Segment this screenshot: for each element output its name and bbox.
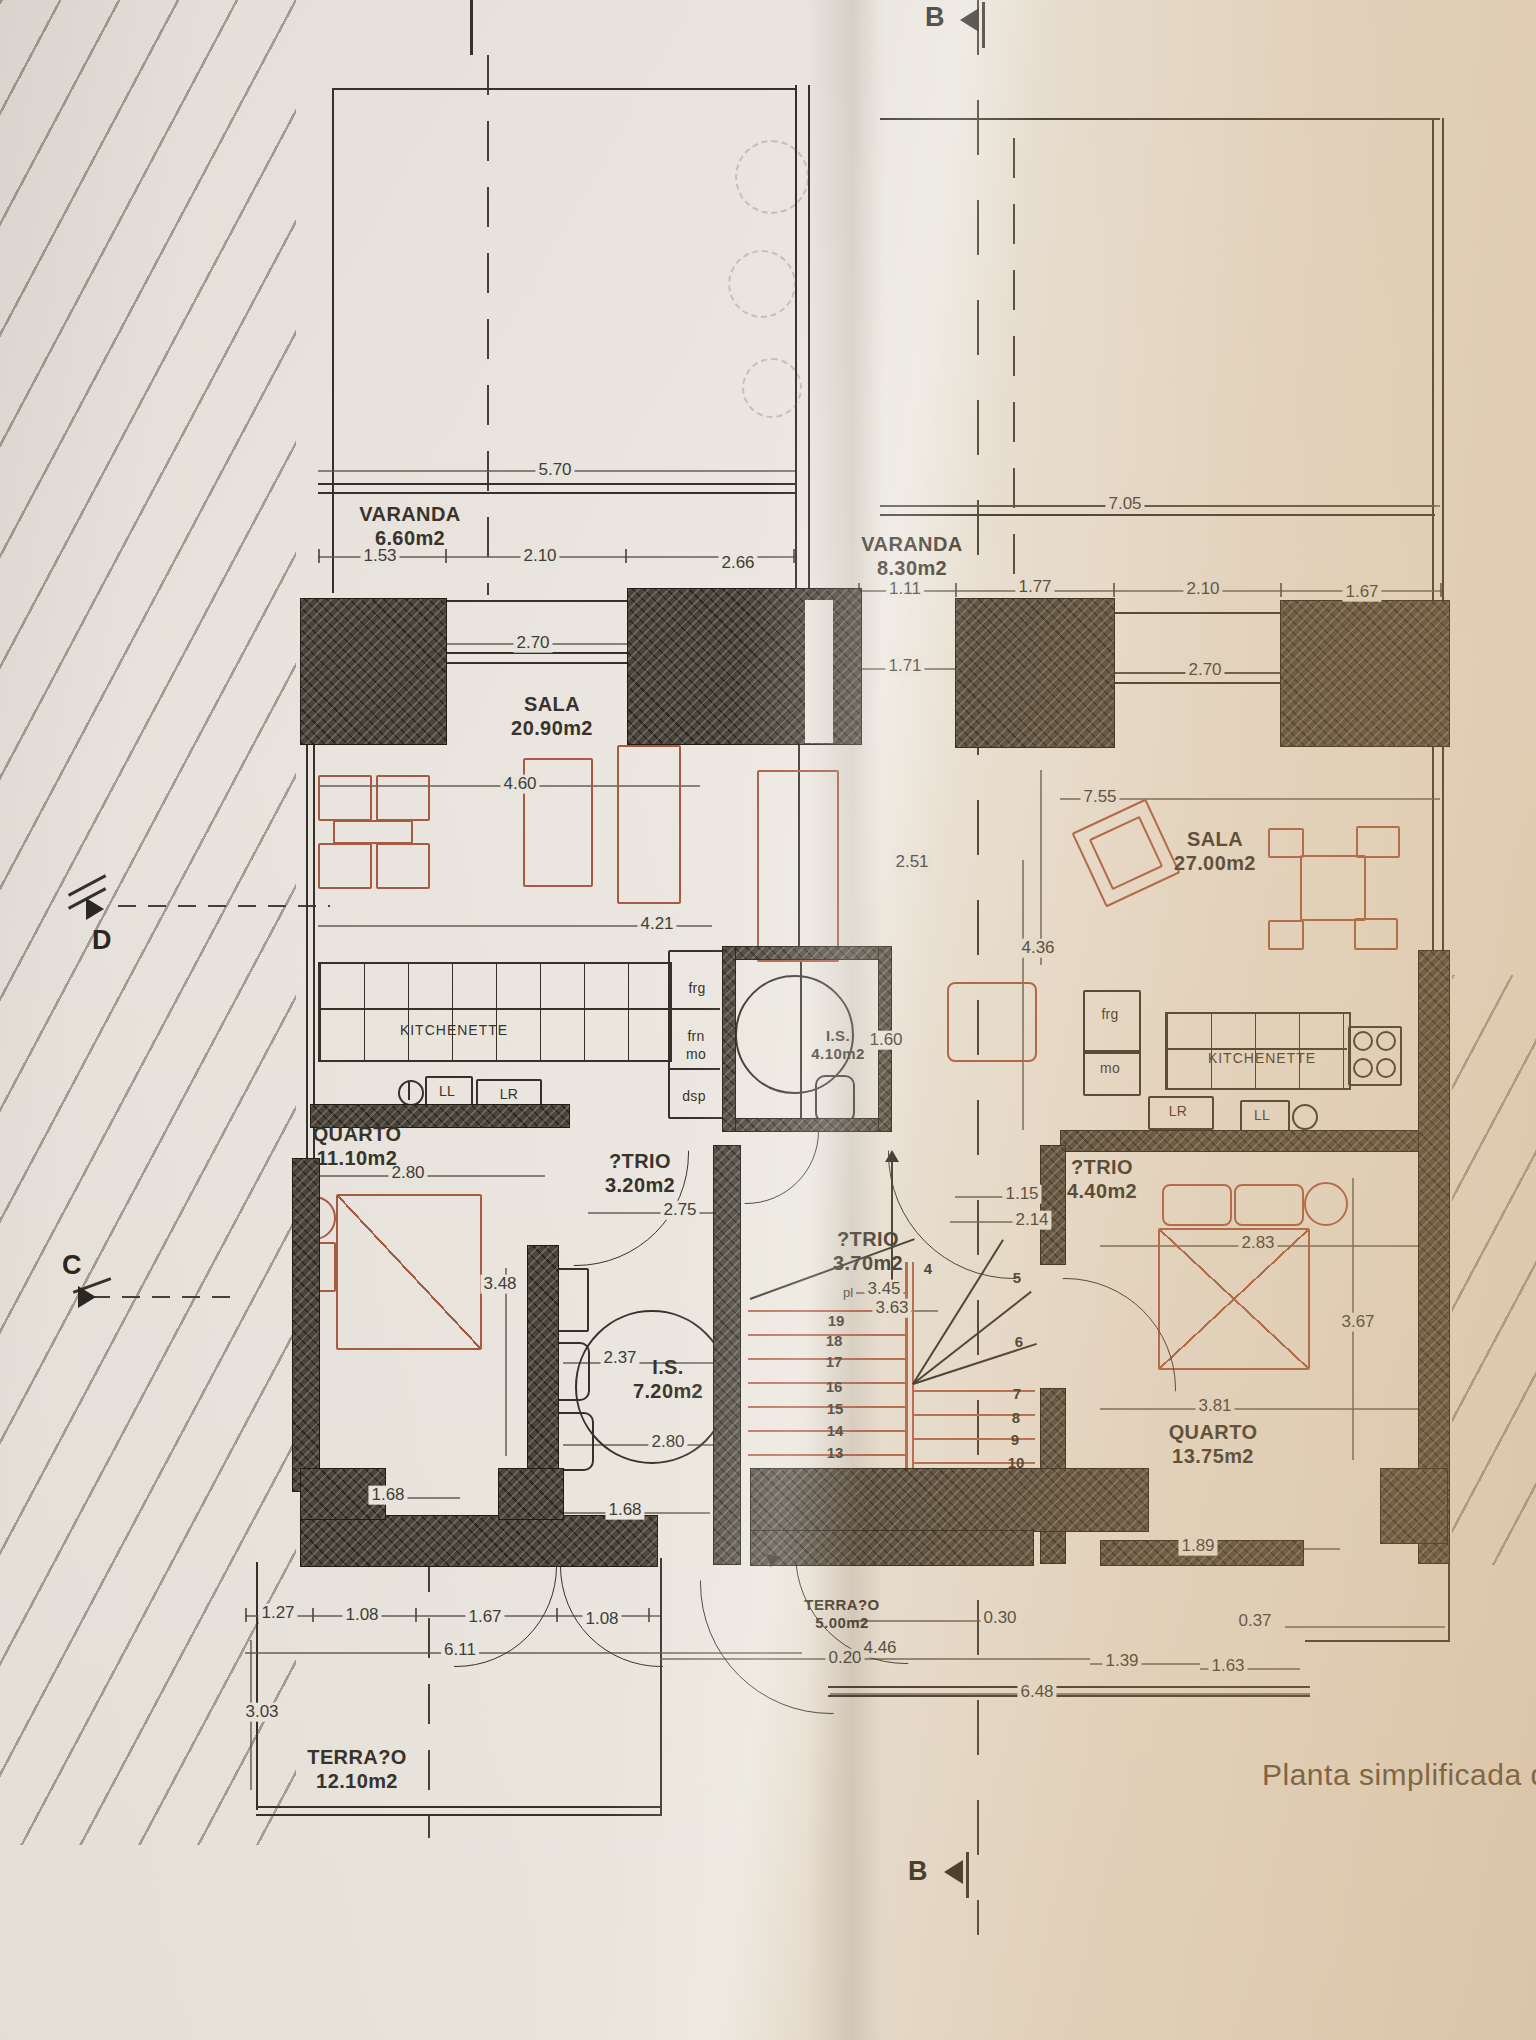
hob-burner	[1353, 1058, 1373, 1078]
dim-tick	[445, 549, 447, 563]
dim-tick	[556, 1608, 558, 1622]
stair-number: 7	[1013, 1385, 1021, 1402]
room-area: 4.10m2	[811, 1045, 864, 1063]
room-label-quarto-right: QUARTO13.75m2	[1169, 1421, 1258, 1468]
stair-number: 13	[827, 1444, 844, 1461]
room-name: ?TRIO	[833, 1228, 903, 1252]
dim-label: 6.48	[1017, 1683, 1056, 1702]
dim-label: pl	[840, 1286, 856, 1300]
wall	[300, 598, 447, 745]
room-area: 6.60m2	[359, 527, 460, 551]
toilet	[815, 1075, 855, 1123]
ghost-circle	[728, 250, 796, 318]
window-sill	[445, 600, 627, 602]
stair-arrow-head	[885, 1150, 899, 1162]
dim-label: 5.70	[535, 461, 574, 480]
room-name: VARANDA	[861, 533, 962, 557]
section-marker-d-icon	[86, 898, 104, 920]
sink-symbol	[398, 1080, 424, 1106]
dim-label: 1.15	[1002, 1185, 1041, 1204]
bed	[1158, 1228, 1310, 1370]
dim-label: 1.68	[368, 1486, 407, 1505]
dim-label: 7.05	[1105, 495, 1144, 514]
dim-line	[830, 1693, 1310, 1695]
dim-tick	[625, 549, 627, 563]
dim-tick	[955, 583, 957, 597]
stair-number: 14	[827, 1422, 844, 1439]
dim-tick	[1280, 583, 1282, 597]
dim-label: 2.70	[513, 634, 552, 653]
sofa	[947, 982, 1037, 1062]
dim-label: 1.08	[582, 1610, 621, 1629]
wall	[722, 946, 736, 1132]
dining-chair	[1268, 920, 1304, 950]
pantry-label: dsp	[682, 1088, 705, 1104]
terrace-edge	[1305, 1640, 1450, 1642]
ghost-circle	[735, 140, 809, 214]
dim-label: 3.45	[864, 1280, 903, 1299]
hob-burner	[1376, 1058, 1396, 1078]
axis-line	[1013, 138, 1015, 600]
armchair	[376, 775, 430, 821]
dim-line	[1100, 1408, 1420, 1410]
dim-label: 1.11	[886, 580, 924, 599]
wall	[713, 1145, 741, 1565]
room-name: VARANDA	[359, 503, 460, 527]
room-label-is-large: I.S.7.20m2	[633, 1356, 703, 1403]
marker-leader-c	[92, 1296, 242, 1298]
room-name: ?TRIO	[605, 1150, 675, 1174]
hob-burner	[1376, 1031, 1396, 1051]
dim-line	[1040, 770, 1042, 965]
dishwasher-label: LL	[439, 1083, 455, 1099]
room-area: 7.20m2	[633, 1380, 703, 1404]
dim-label: 2.10	[520, 547, 559, 566]
ghost-circle	[742, 358, 802, 418]
room-label-quarto-left: QUARTO11.10m2	[313, 1123, 402, 1170]
stair-number: 4	[924, 1260, 932, 1277]
room-name: I.S.	[811, 1027, 864, 1045]
wall	[722, 946, 892, 960]
stair-number: 6	[1015, 1333, 1023, 1350]
coffee-table	[333, 820, 413, 844]
terrace-edge	[828, 1686, 1310, 1688]
dim-label: 2.70	[1185, 661, 1224, 680]
room-label-terraco-left: TERRA?O12.10m2	[307, 1746, 406, 1793]
section-marker-b-bottom-bar	[966, 1852, 969, 1898]
wall	[1060, 1130, 1447, 1152]
room-area: 4.40m2	[1067, 1180, 1137, 1204]
dim-label: 1.89	[1178, 1537, 1217, 1556]
section-marker-b-top-bar	[982, 2, 985, 48]
washer-label: LR	[1169, 1103, 1188, 1119]
sink-symbol	[1292, 1104, 1318, 1130]
dim-label: 1.77	[1015, 578, 1054, 597]
boundary-line	[880, 118, 1440, 120]
stair-number: 5	[1013, 1269, 1021, 1286]
sofa	[757, 770, 839, 962]
floor-plan-photo: 5.70 1.53 2.10 2.66 2.70 4.60 4.21 7.05 …	[0, 0, 1536, 2040]
window-sill	[1113, 682, 1280, 684]
room-area: 20.90m2	[511, 717, 593, 741]
wall	[750, 1468, 1149, 1532]
room-area: 3.70m2	[833, 1252, 903, 1276]
sofa	[617, 745, 681, 904]
margin-hatch-left	[0, 0, 296, 1845]
stair-number: 9	[1011, 1431, 1019, 1448]
dim-label: 2.75	[660, 1201, 699, 1220]
dishwasher-label: LL	[1254, 1107, 1270, 1123]
room-area: 8.30m2	[861, 557, 962, 581]
dim-label: 4.46	[860, 1639, 899, 1658]
dim-label: 3.63	[872, 1299, 911, 1318]
dim-label: 2.80	[648, 1433, 687, 1452]
dining-chair	[1356, 826, 1400, 858]
dim-tick	[1113, 583, 1115, 597]
terrace-edge	[256, 1806, 662, 1808]
wall	[722, 1118, 892, 1132]
dim-label: 1.71	[885, 657, 924, 676]
room-label-terraco-mid: TERRA?O5.00m2	[804, 1596, 879, 1631]
dim-tick	[245, 1608, 247, 1622]
dim-label: 4.21	[637, 915, 676, 934]
room-name: TERRA?O	[804, 1596, 879, 1614]
room-area: 5.00m2	[804, 1614, 879, 1632]
dim-label: 2.83	[1238, 1234, 1277, 1253]
window-sill	[445, 662, 627, 664]
room-name: SALA	[511, 693, 593, 717]
room-label-atrio-left: ?TRIO3.20m2	[605, 1150, 675, 1197]
room-area: 13.75m2	[1169, 1445, 1258, 1469]
room-area: 27.00m2	[1174, 852, 1256, 876]
section-marker-b-bottom-icon	[944, 1860, 963, 1884]
dim-label: 1.67	[1342, 583, 1381, 602]
dim-label: 4.60	[500, 775, 539, 794]
wall	[527, 1245, 559, 1492]
wall	[750, 1530, 1034, 1566]
dim-label: 2.51	[892, 853, 931, 872]
room-name: QUARTO	[313, 1123, 402, 1147]
fridge-label: frg	[688, 980, 705, 996]
room-name: ?TRIO	[1067, 1156, 1137, 1180]
hob-burner	[1353, 1031, 1373, 1051]
wall	[498, 1468, 564, 1520]
microwave-label: mo	[1100, 1060, 1120, 1076]
stair-number: 16	[826, 1378, 843, 1395]
room-area: 12.10m2	[307, 1770, 406, 1794]
microwave-label: mo	[686, 1046, 706, 1062]
dim-label: 2.66	[718, 554, 757, 573]
balcony-rail	[880, 514, 1435, 516]
pillow	[1162, 1184, 1232, 1226]
exterior-wall-line	[313, 740, 315, 1162]
bedside-circle	[1304, 1182, 1348, 1226]
room-label-sala-right: SALA27.00m2	[1174, 828, 1256, 875]
wall	[1280, 600, 1450, 747]
wall	[1380, 1468, 1448, 1544]
exterior-wall-line	[306, 740, 308, 1162]
dining-chair	[1268, 828, 1304, 858]
stair-number: 15	[827, 1400, 844, 1417]
dim-label: 0.30	[980, 1609, 1019, 1628]
dining-table	[1300, 855, 1366, 921]
boundary-line	[1442, 118, 1444, 953]
dim-tick	[415, 1608, 417, 1622]
section-marker-b-bottom: B	[908, 1856, 928, 1887]
room-label-sala-left: SALA20.90m2	[511, 693, 593, 740]
section-marker-c: C	[62, 1250, 82, 1281]
oven-label: frn	[687, 1028, 704, 1044]
balcony-rail	[318, 483, 795, 485]
dim-tick	[318, 549, 320, 563]
boundary-line	[332, 88, 797, 90]
dim-label: 1.27	[258, 1604, 297, 1623]
dim-label: 2.10	[1183, 580, 1222, 599]
wall-opening	[805, 600, 833, 743]
dim-label: 3.81	[1195, 1397, 1234, 1416]
room-label-is-small: I.S.4.10m2	[811, 1027, 864, 1062]
room-area: 3.20m2	[605, 1174, 675, 1198]
boundary-line	[1432, 118, 1434, 953]
dim-label: 7.55	[1080, 788, 1119, 807]
terrace-edge	[1448, 1562, 1450, 1642]
axis-tick	[470, 0, 473, 55]
dim-label: 2.14	[1012, 1211, 1051, 1230]
dim-tick	[1440, 583, 1442, 597]
dim-label: 4.36	[1018, 939, 1057, 958]
dim-label: 1.68	[605, 1501, 644, 1520]
dim-label: 3.67	[1338, 1313, 1377, 1332]
stair-number: 8	[1012, 1409, 1020, 1426]
dim-label: 1.60	[866, 1031, 905, 1050]
boundary-line	[332, 88, 334, 593]
stair-number: 10	[1008, 1454, 1025, 1471]
armchair	[318, 775, 372, 821]
dim-line	[318, 1175, 545, 1177]
pillow	[1234, 1184, 1304, 1226]
room-area: 11.10m2	[313, 1147, 402, 1171]
bed	[336, 1194, 482, 1350]
stair-number: 17	[826, 1353, 843, 1370]
terrace-edge	[828, 1695, 1310, 1697]
dim-line	[505, 1268, 507, 1456]
wall	[955, 598, 1115, 748]
window-sill	[1113, 612, 1280, 614]
axis-line	[428, 1552, 430, 1838]
dim-label: 6.11	[441, 1641, 479, 1660]
dim-line	[1285, 1626, 1445, 1628]
margin-hatch-right	[1452, 975, 1536, 1565]
dim-label: 1.67	[465, 1608, 504, 1627]
section-marker-b-top: B	[925, 2, 945, 33]
balcony-rail	[318, 492, 795, 494]
room-label-varanda-right: VARANDA8.30m2	[861, 533, 962, 580]
dim-label: 0.37	[1235, 1612, 1274, 1631]
kitchen-counter	[318, 962, 672, 1062]
fridge-label: frg	[1101, 1006, 1118, 1022]
terrace-edge	[256, 1562, 258, 1810]
room-label-atrio-right: ?TRIO4.40m2	[1067, 1156, 1137, 1203]
dim-line	[880, 505, 1440, 507]
fridge-box	[1083, 990, 1141, 1054]
dim-label: 3.48	[480, 1275, 519, 1294]
terrace-edge	[256, 1814, 662, 1816]
marker-leader-d	[118, 905, 330, 907]
wall	[1040, 1145, 1066, 1265]
stair-number: 18	[826, 1332, 843, 1349]
armchair	[318, 843, 372, 889]
kitchenette-label: KITCHENETTE	[1208, 1050, 1316, 1066]
room-label-varanda-left: VARANDA6.60m2	[359, 503, 460, 550]
section-marker-c-icon	[78, 1286, 96, 1308]
dim-tick	[793, 549, 795, 563]
dim-label: 1.39	[1102, 1652, 1141, 1671]
wall	[300, 1515, 658, 1567]
axis-line	[487, 55, 489, 595]
armchair	[376, 843, 430, 889]
room-label-atrio-mid: ?TRIO3.70m2	[833, 1228, 903, 1275]
wall	[292, 1158, 320, 1492]
section-marker-b-top-icon	[960, 8, 979, 32]
dim-label: 1.08	[342, 1606, 381, 1625]
room-name: QUARTO	[1169, 1421, 1258, 1445]
dim-tick	[312, 1608, 314, 1622]
room-name: I.S.	[633, 1356, 703, 1380]
room-name: TERRA?O	[307, 1746, 406, 1770]
drawing-caption: Planta simplificada d	[1262, 1758, 1536, 1792]
dim-label: 0.20	[825, 1649, 864, 1668]
section-marker-d: D	[92, 925, 112, 956]
dim-label: 1.63	[1208, 1657, 1247, 1676]
dining-chair	[1354, 918, 1398, 950]
dim-label: 3.03	[242, 1703, 281, 1722]
section-line-b	[977, 0, 979, 1935]
kitchenette-label: KITCHENETTE	[400, 1022, 508, 1038]
room-name: SALA	[1174, 828, 1256, 852]
dim-line	[245, 1652, 802, 1654]
stair-number: 19	[828, 1312, 845, 1329]
washer-label: LR	[500, 1086, 519, 1102]
